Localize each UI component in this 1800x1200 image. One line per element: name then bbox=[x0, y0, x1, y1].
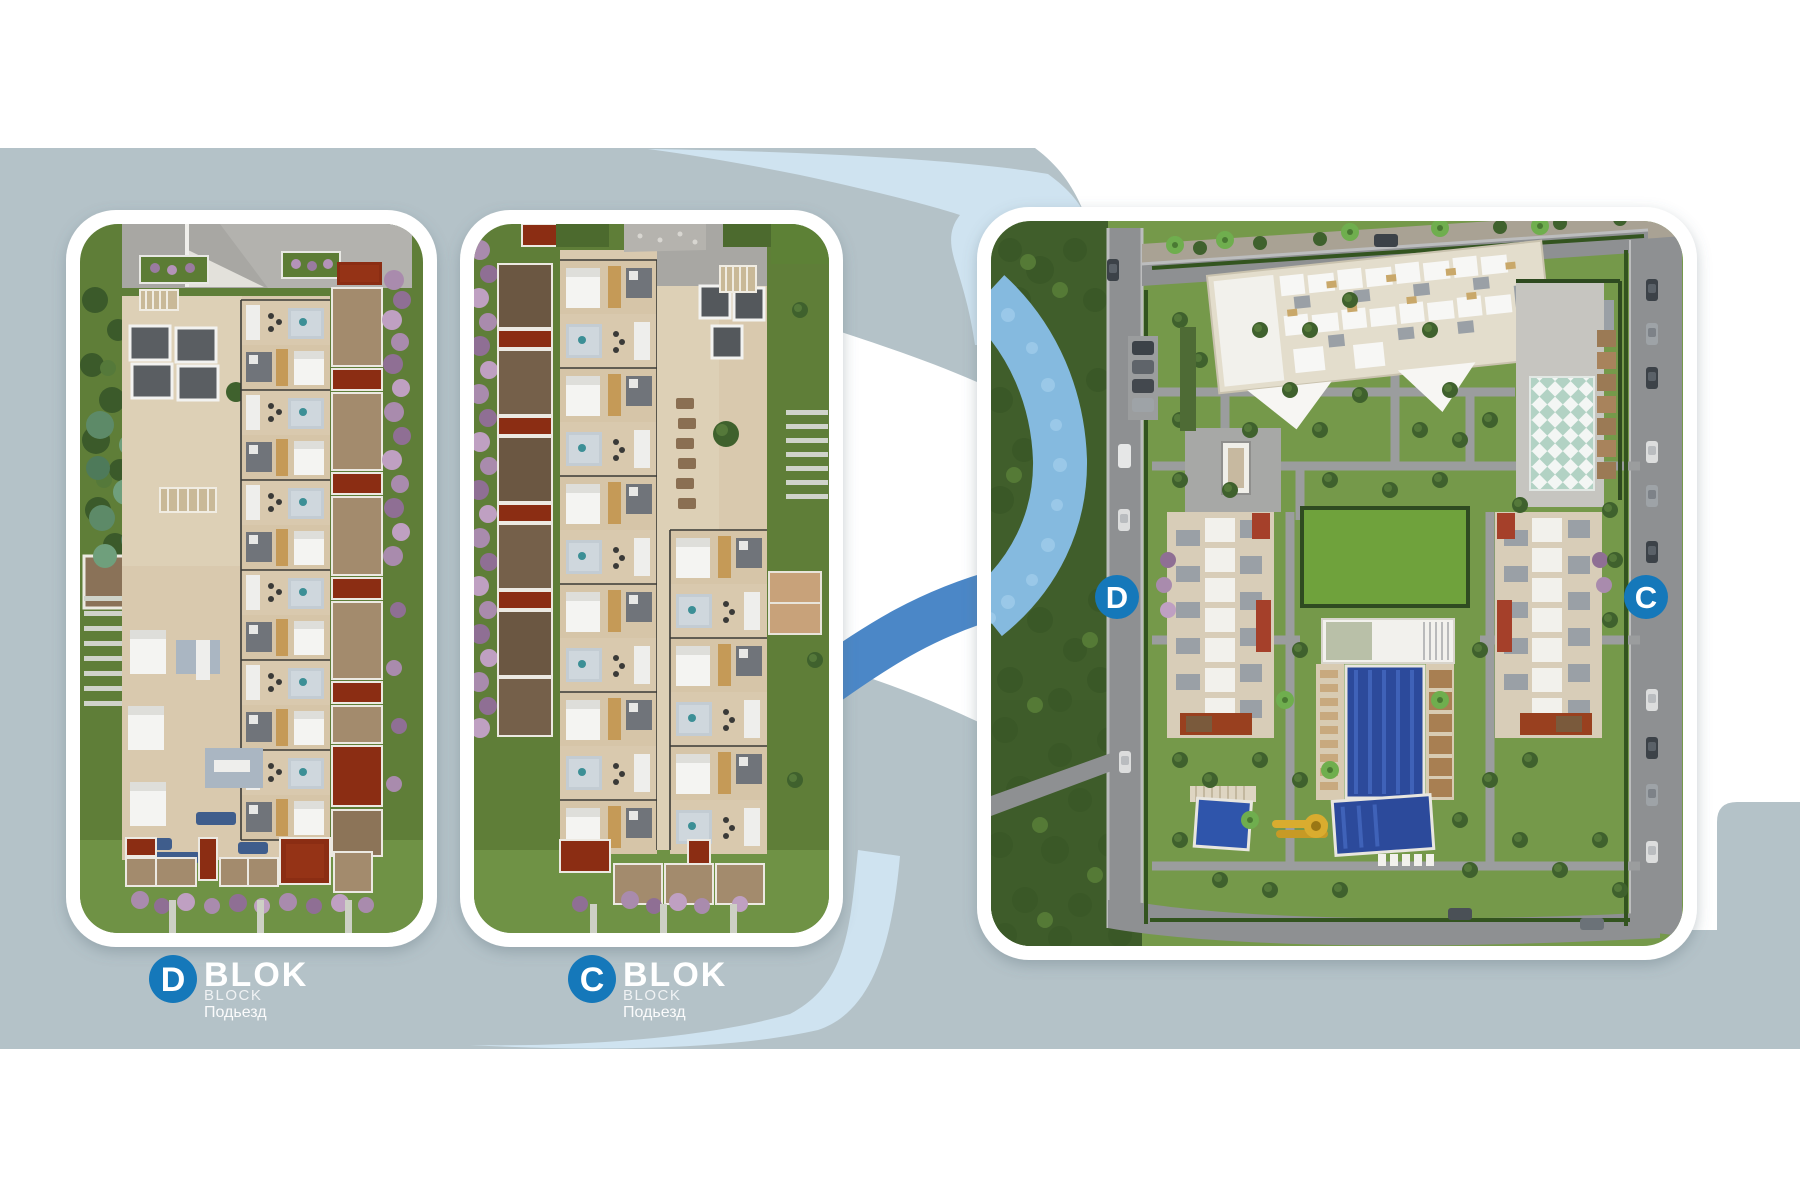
svg-text:C: C bbox=[1635, 580, 1657, 615]
svg-text:Подьезд: Подьезд bbox=[623, 1004, 686, 1021]
svg-text:D: D bbox=[1106, 580, 1128, 615]
svg-text:C: C bbox=[580, 961, 605, 999]
svg-text:BLOCK: BLOCK bbox=[623, 987, 681, 1004]
svg-text:BLOCK: BLOCK bbox=[204, 987, 262, 1004]
svg-text:D: D bbox=[161, 961, 186, 999]
svg-text:Подьезд: Подьезд bbox=[204, 1004, 267, 1021]
